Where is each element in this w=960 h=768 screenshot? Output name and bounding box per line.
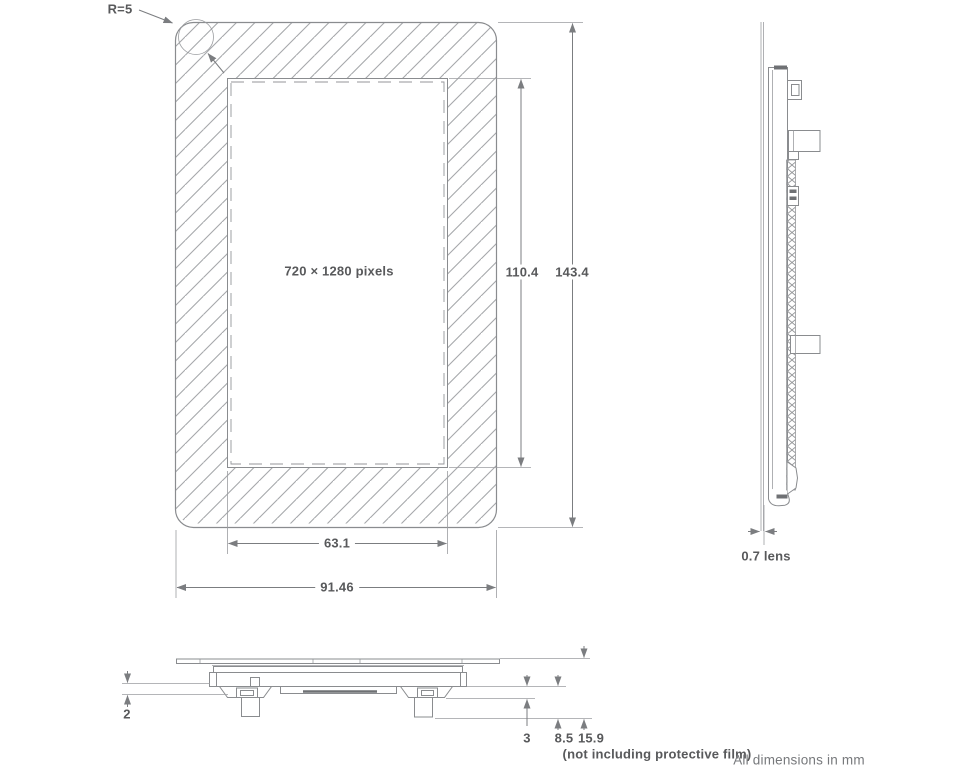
drawing-linework [0,0,960,768]
dimension-drawing: R=5 720 × 1280 pixels 110.4 143.4 63.1 9… [0,0,960,768]
bottom-frame [214,667,463,673]
outline-width-value: 91.46 [315,580,359,595]
side-connector-detail [788,187,799,206]
module-thickness-value: 8.5 [555,732,574,745]
side-zigzag-strip [787,160,796,490]
side-view [748,22,820,545]
side-tab-lower [791,336,821,354]
resolution-label: 720 × 1280 pixels [284,265,393,278]
active-height-value: 110.4 [501,265,544,280]
film-note: (not including protective film) [563,748,752,761]
side-lower-bulge [788,462,798,494]
side-body [769,68,788,498]
units-note: All dimensions in mm [733,753,865,767]
bottom-right-bracket [401,687,453,718]
r5-leader-line [139,10,173,23]
bottom-body [210,673,467,687]
bottom-glass-bar [177,659,500,664]
flange-gap-value: 2 [123,708,130,721]
total-thickness-value: 15.9 [578,732,604,745]
outline-height-value: 143.4 [550,265,594,280]
bottom-view [122,646,592,730]
lens-thickness-label: 0.7 lens [741,550,790,563]
bottom-left-bracket [220,687,272,717]
dim-lens-thickness [748,505,777,545]
corner-radius-label: R=5 [108,3,133,16]
side-top-cap [774,66,787,70]
front-view [139,10,583,598]
active-width-value: 63.1 [319,536,355,551]
connector-step-value: 3 [523,732,530,745]
